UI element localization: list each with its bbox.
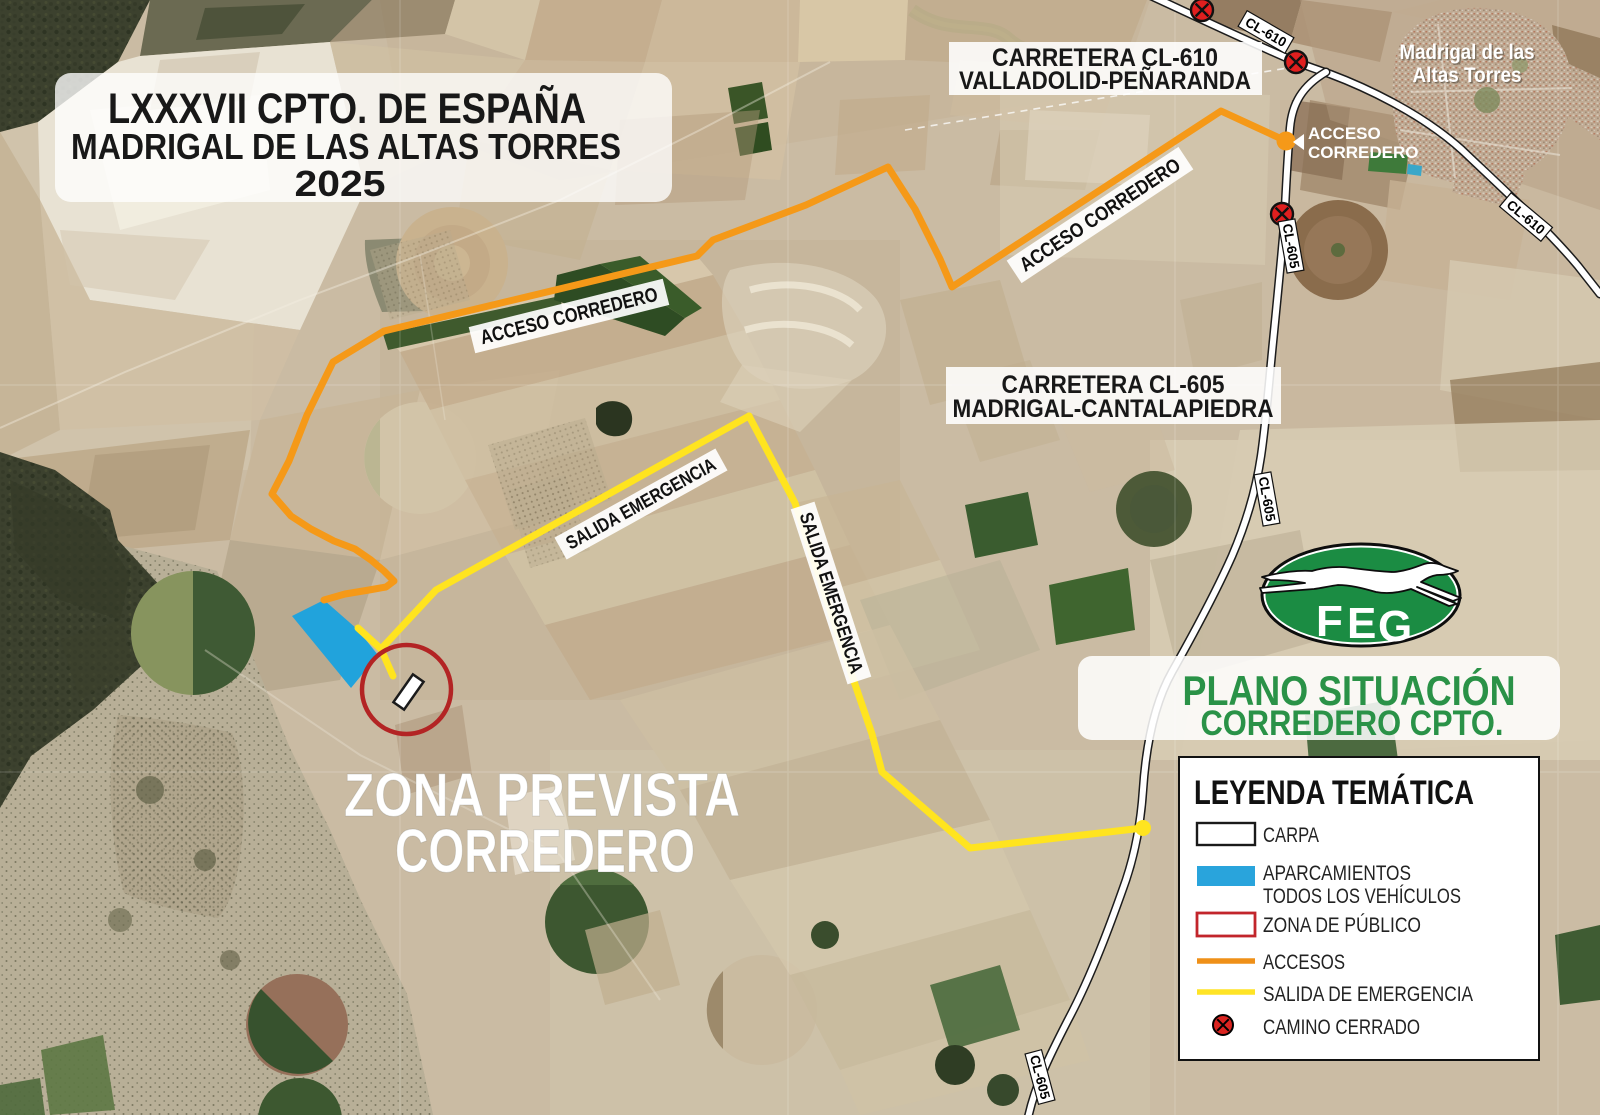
svg-text:ZONA DE PÚBLICO: ZONA DE PÚBLICO xyxy=(1263,912,1421,937)
svg-text:G: G xyxy=(1378,602,1412,651)
svg-text:CORREDERO CPTO.: CORREDERO CPTO. xyxy=(1201,704,1504,743)
svg-text:TODOS LOS VEHÍCULOS: TODOS LOS VEHÍCULOS xyxy=(1263,883,1461,908)
svg-text:MADRIGAL DE LAS ALTAS TORRES: MADRIGAL DE LAS ALTAS TORRES xyxy=(71,126,621,167)
svg-text:VALLADOLID-PEÑARANDA: VALLADOLID-PEÑARANDA xyxy=(959,65,1251,95)
svg-text:CAMINO CERRADO: CAMINO CERRADO xyxy=(1263,1015,1420,1039)
svg-text:CARPA: CARPA xyxy=(1263,823,1320,847)
svg-text:E: E xyxy=(1347,599,1376,648)
svg-text:F: F xyxy=(1316,597,1343,646)
svg-text:CORREDERO: CORREDERO xyxy=(1308,143,1419,162)
svg-text:CORREDERO: CORREDERO xyxy=(395,817,695,885)
svg-text:Madrigal de las: Madrigal de las xyxy=(1400,41,1535,64)
svg-text:LEYENDA TEMÁTICA: LEYENDA TEMÁTICA xyxy=(1194,774,1474,812)
svg-text:APARCAMIENTOS: APARCAMIENTOS xyxy=(1263,861,1411,885)
svg-text:ACCESO: ACCESO xyxy=(1308,124,1381,143)
svg-text:ACCESOS: ACCESOS xyxy=(1263,950,1345,974)
svg-text:2025: 2025 xyxy=(295,163,386,204)
svg-text:MADRIGAL-CANTALAPIEDRA: MADRIGAL-CANTALAPIEDRA xyxy=(953,395,1274,423)
svg-text:SALIDA DE EMERGENCIA: SALIDA DE EMERGENCIA xyxy=(1263,982,1474,1006)
svg-text:Altas Torres: Altas Torres xyxy=(1413,64,1522,87)
